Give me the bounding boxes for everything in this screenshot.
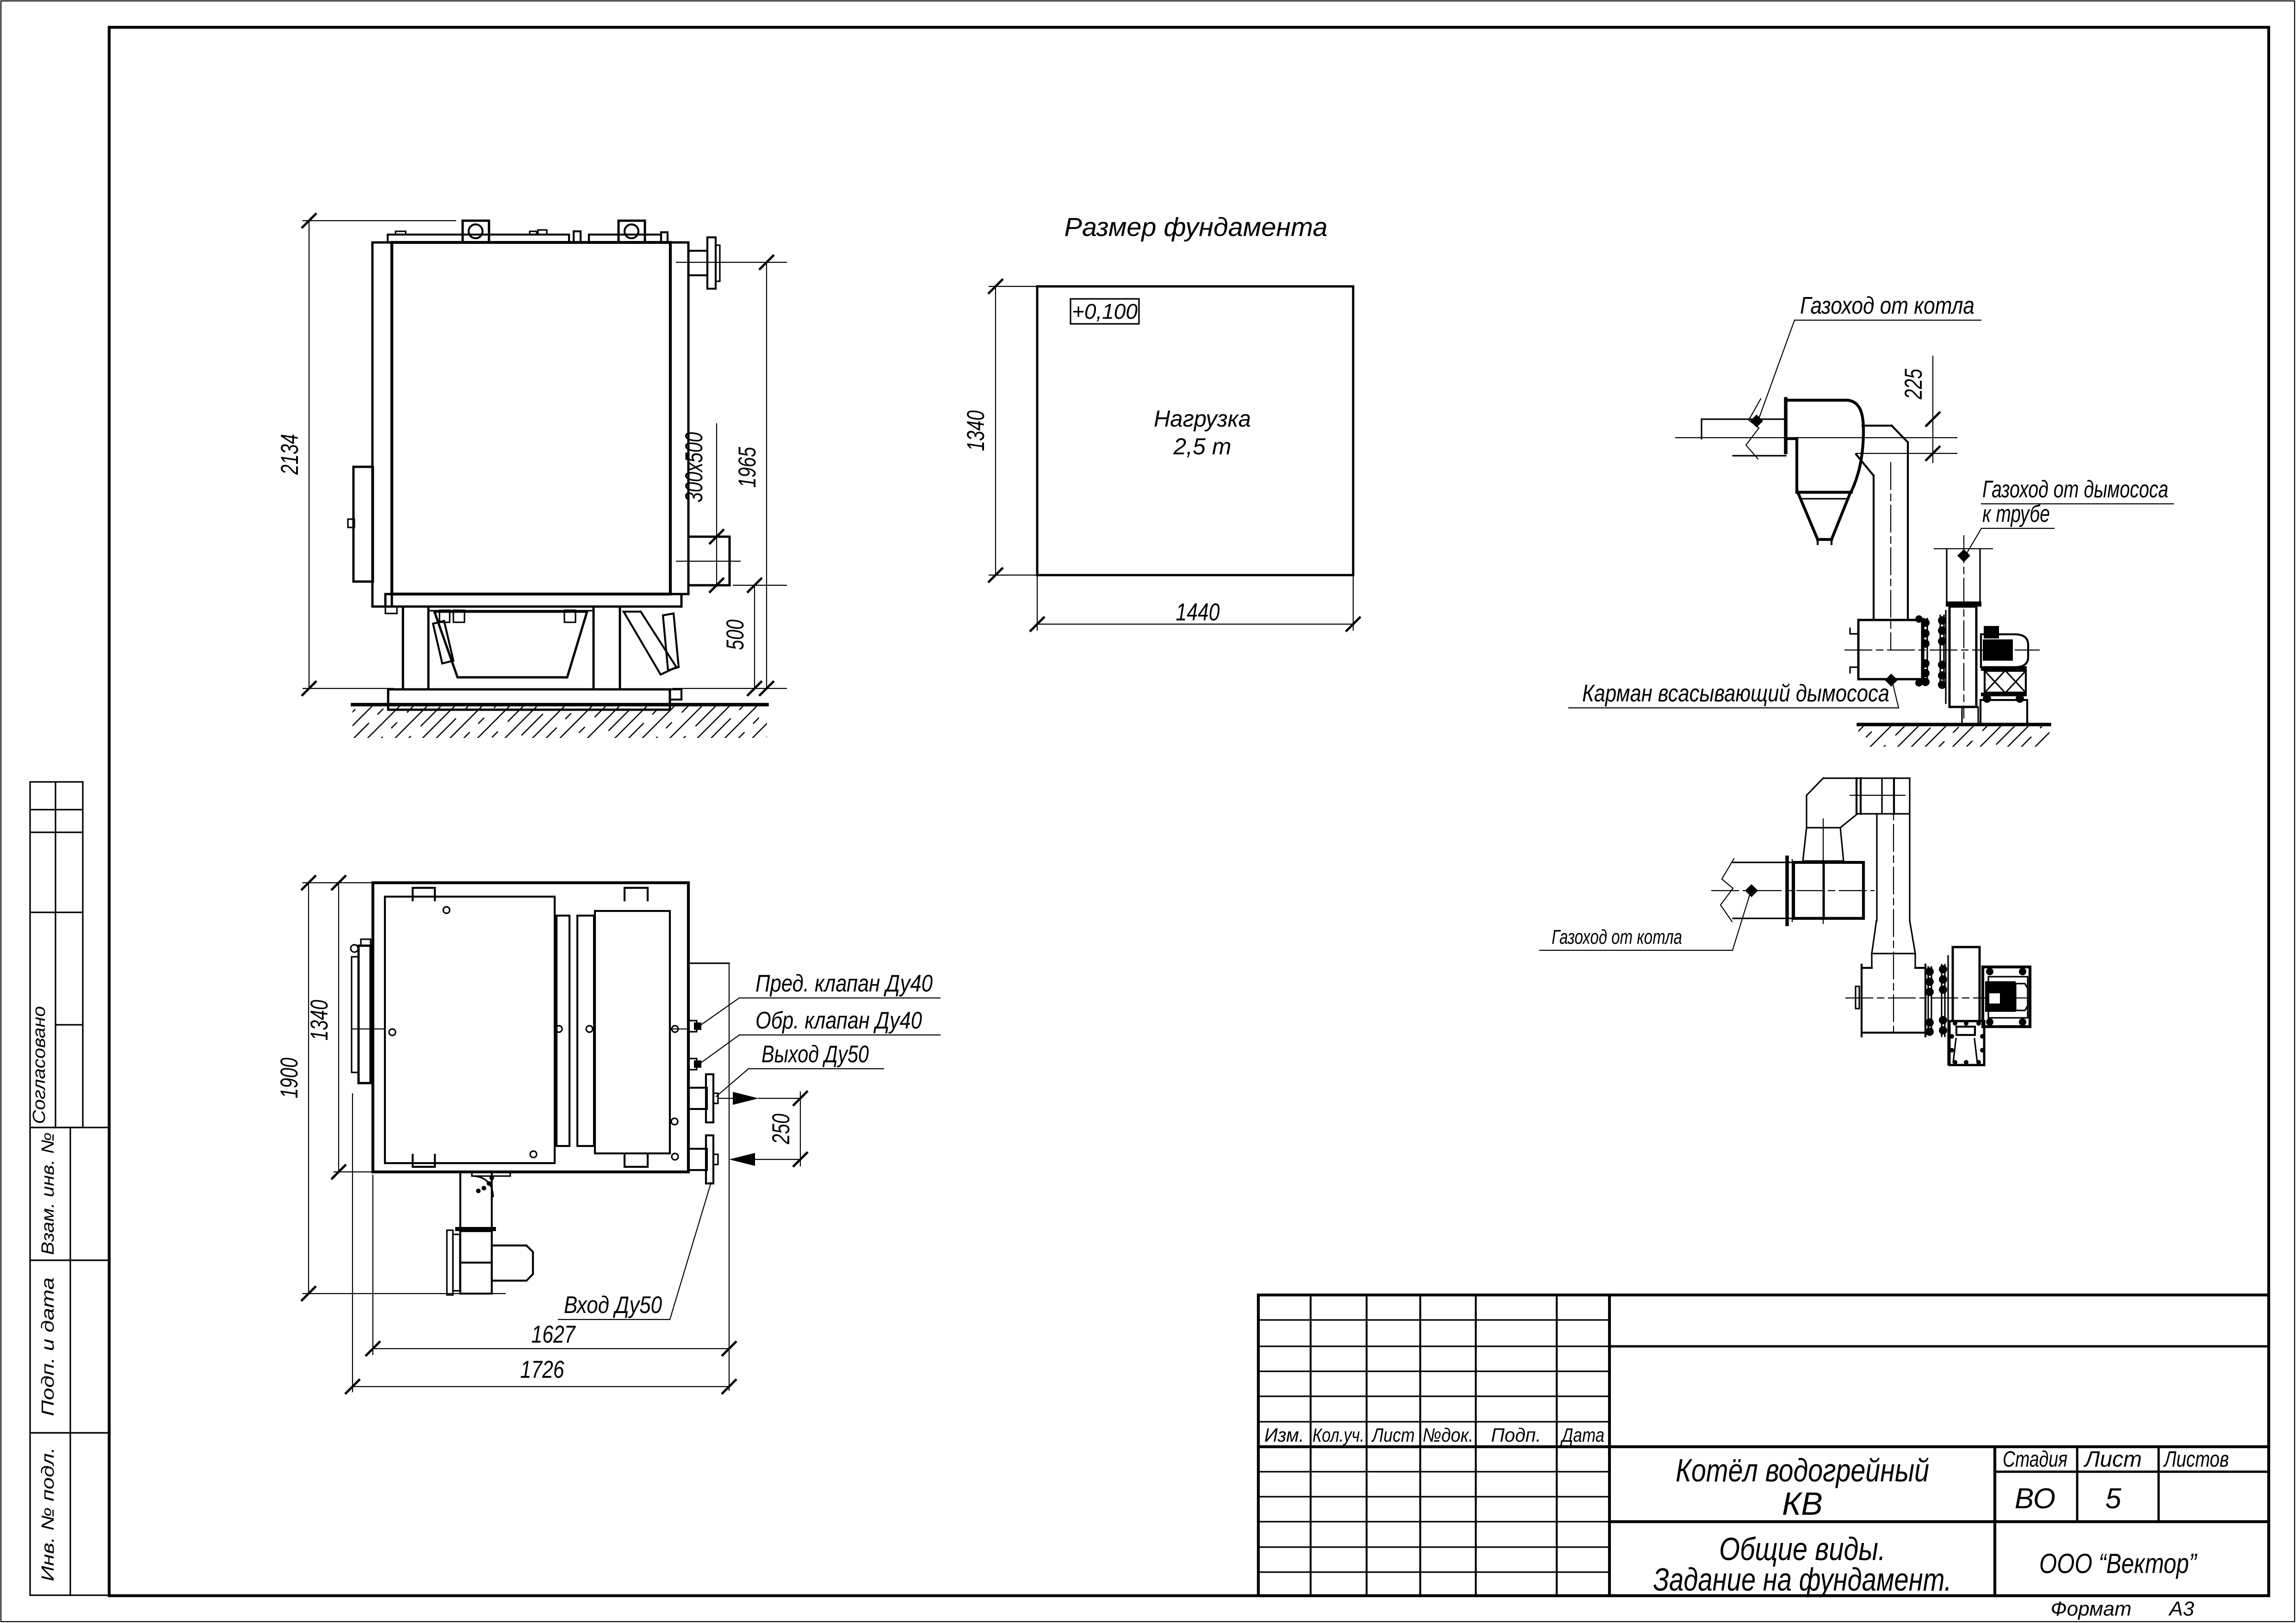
svg-text:Вход Ду50: Вход Ду50	[564, 1292, 662, 1319]
svg-text:Выход Ду50: Выход Ду50	[761, 1041, 869, 1068]
svg-text:+0,100: +0,100	[1072, 299, 1138, 323]
svg-text:1440: 1440	[1176, 599, 1220, 626]
svg-text:Нагрузка: Нагрузка	[1154, 406, 1251, 432]
svg-text:Стадия: Стадия	[2003, 1447, 2067, 1472]
svg-text:к трубе: к трубе	[1982, 501, 2050, 527]
svg-text:Котёл водогрейный: Котёл водогрейный	[1676, 1452, 1929, 1488]
svg-text:№док.: №док.	[1423, 1424, 1473, 1446]
svg-text:250: 250	[767, 1114, 795, 1145]
svg-text:Размер фундамента: Размер фундамента	[1064, 212, 1328, 242]
svg-text:Задание на фундамент.: Задание на фундамент.	[1653, 1561, 1952, 1598]
svg-text:1340: 1340	[962, 410, 990, 451]
svg-text:500: 500	[722, 619, 749, 650]
svg-text:ВО: ВО	[2015, 1483, 2055, 1515]
svg-text:Дата: Дата	[1560, 1424, 1604, 1446]
svg-text:1627: 1627	[532, 1321, 576, 1348]
svg-text:300х500: 300х500	[681, 432, 708, 502]
svg-text:А3: А3	[2168, 1598, 2194, 1620]
svg-text:1900: 1900	[276, 1058, 303, 1098]
svg-text:Лист: Лист	[1371, 1424, 1415, 1446]
svg-text:Изм.: Изм.	[1264, 1424, 1304, 1446]
svg-text:2134: 2134	[276, 434, 303, 475]
svg-text:1340: 1340	[306, 1000, 333, 1041]
svg-text:Газоход от котла: Газоход от котла	[1552, 926, 1682, 948]
svg-text:Взам. инв. №: Взам. инв. №	[38, 1133, 58, 1255]
svg-text:Обр. клапан Ду40: Обр. клапан Ду40	[755, 1007, 922, 1034]
svg-text:Листов: Листов	[2163, 1447, 2229, 1472]
svg-text:1965: 1965	[734, 447, 761, 488]
svg-text:Формат: Формат	[2051, 1598, 2132, 1620]
svg-text:Пред. клапан Ду40: Пред. клапан Ду40	[755, 970, 933, 997]
svg-text:Лист: Лист	[2083, 1447, 2142, 1472]
svg-text:Газоход от дымососа: Газоход от дымососа	[1982, 476, 2168, 503]
svg-text:Кол.уч.: Кол.уч.	[1312, 1424, 1364, 1446]
svg-text:225: 225	[1900, 369, 1927, 400]
svg-text:1726: 1726	[520, 1356, 564, 1383]
svg-text:Подп. и дата: Подп. и дата	[38, 1277, 58, 1416]
svg-text:Инв. № подл.: Инв. № подл.	[38, 1447, 58, 1581]
svg-text:Согласовано: Согласовано	[30, 1006, 49, 1124]
svg-text:Карман всасывающий дымососа: Карман всасывающий дымососа	[1582, 680, 1889, 707]
svg-text:ООО “Вектор”: ООО “Вектор”	[2039, 1548, 2197, 1579]
svg-text:2,5 т: 2,5 т	[1173, 434, 1231, 459]
svg-text:5: 5	[2105, 1483, 2122, 1515]
svg-text:Подп.: Подп.	[1491, 1424, 1541, 1446]
svg-text:КВ: КВ	[1782, 1486, 1823, 1522]
svg-text:Газоход от котла: Газоход от котла	[1800, 292, 1974, 319]
